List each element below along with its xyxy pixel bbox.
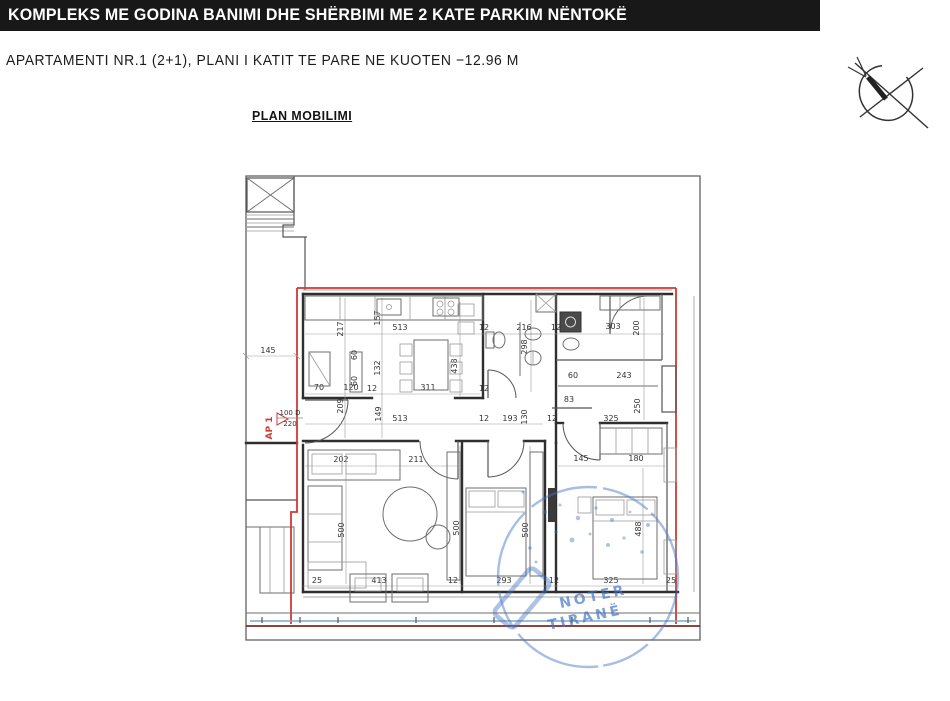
dimension-label: 12 [479, 414, 489, 423]
dimension-label: 303 [605, 322, 620, 331]
dimension-label: 130 [520, 409, 529, 424]
dimension-label: 217 [336, 321, 345, 336]
dimension-label: 513 [392, 414, 407, 423]
dimension-label: 12 [367, 384, 377, 393]
dimension-label: 12 [479, 323, 489, 332]
dimension-label: 488 [634, 521, 643, 536]
dimension-label: 513 [392, 323, 407, 332]
balcony-railing [246, 613, 700, 626]
north-symbol-icon [848, 55, 928, 131]
dimension-label: 216 [516, 323, 531, 332]
dimension-label: 60 [350, 350, 359, 360]
dimension-label: 250 [633, 398, 642, 413]
dimension-label: 438 [450, 358, 459, 373]
dimension-label: 149 [374, 406, 383, 421]
dimension-label: 120 [343, 383, 358, 392]
dimension-label: 83 [564, 395, 574, 404]
dimension-label: 413 [371, 576, 386, 585]
elevator-icon [247, 178, 294, 212]
dimension-label: 12 [479, 384, 489, 393]
floor-plan-drawing: 1452171575131221612298303200606013243870… [0, 0, 950, 701]
dimension-label: 12 [547, 414, 557, 423]
dimension-label: 311 [420, 383, 435, 392]
dimension-label: 60 [568, 371, 578, 380]
dimension-label: 70 [314, 383, 324, 392]
dimension-label: 25 [666, 576, 676, 585]
dimension-label: 193 [502, 414, 517, 423]
stairs-icon [247, 176, 307, 290]
dimension-label: 25 [312, 576, 322, 585]
bedroom2-furniture [578, 428, 676, 579]
dimension-label: 132 [373, 360, 382, 375]
kitchen-furniture [305, 296, 483, 392]
bedroom1-furniture [466, 452, 556, 576]
dimension-label: 211 [408, 455, 423, 464]
dimension-label: 180 [628, 454, 643, 463]
dimension-label: 243 [616, 371, 631, 380]
neighbor-walls [246, 443, 297, 593]
dimension-label: 145 [260, 346, 275, 355]
interior-walls [303, 290, 678, 597]
dimension-label: 209 [336, 398, 345, 413]
dimension-label: 145 [573, 454, 588, 463]
entrance-door-height: 220 [283, 420, 296, 428]
dimension-label: 200 [632, 320, 641, 335]
apartment-tag: AP 1 [265, 417, 275, 440]
entrance-door-width: 100 D [280, 409, 301, 417]
dimension-label: 325 [603, 414, 618, 423]
